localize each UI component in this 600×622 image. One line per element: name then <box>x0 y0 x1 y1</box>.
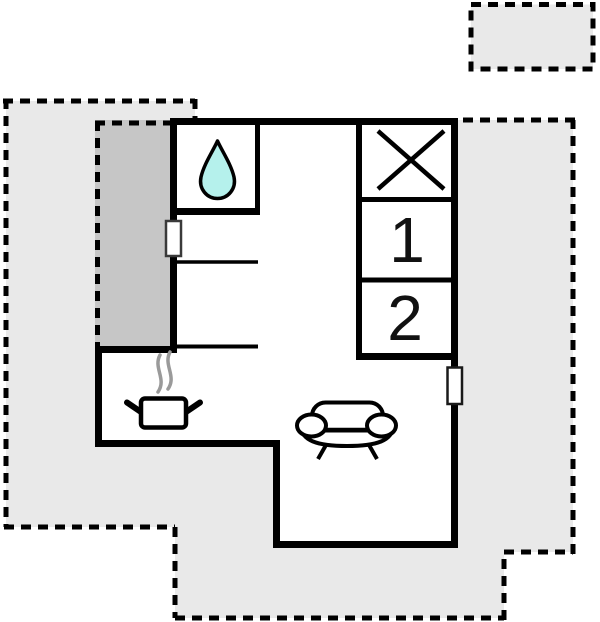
floor-plan-page: 1 2 <box>0 0 600 622</box>
bedroom-2-label: 2 <box>387 282 423 354</box>
terrace-covered-area <box>95 120 174 350</box>
floor-plan-drawing: 1 2 <box>0 0 600 622</box>
sofa-armrest-left <box>297 415 326 437</box>
terrace-detached-area <box>471 5 593 70</box>
bedroom-1-label: 1 <box>389 204 425 276</box>
door-right-icon <box>448 368 463 405</box>
door-left-icon <box>166 221 181 256</box>
pot-body <box>141 399 186 428</box>
sofa-armrest-right <box>367 415 396 437</box>
